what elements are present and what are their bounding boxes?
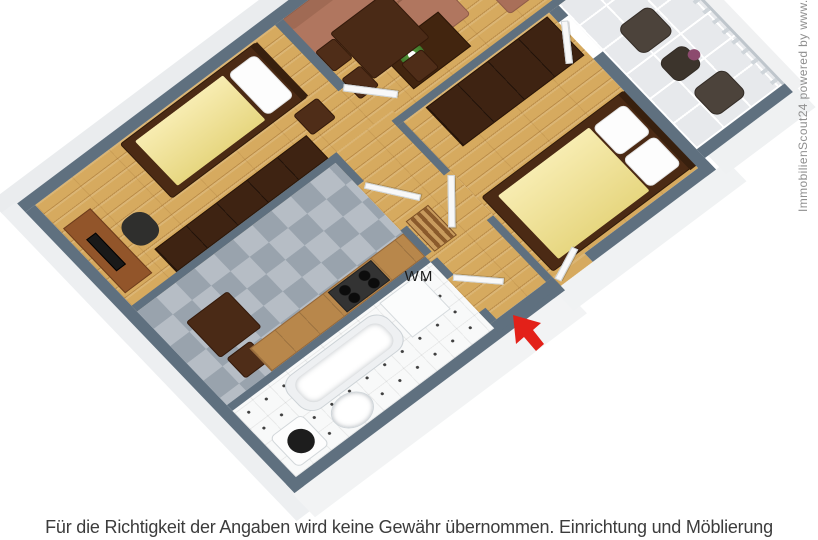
apartment-3d-render (35, 204, 36, 205)
disclaimer-caption: Für die Richtigkeit der Angaben wird kei… (0, 517, 818, 538)
door-bedroom2 (447, 175, 455, 228)
floorplan-screenshot: WM ImmobilienScout24 powered by www.di F… (0, 0, 818, 540)
toilet-seat (282, 424, 321, 458)
